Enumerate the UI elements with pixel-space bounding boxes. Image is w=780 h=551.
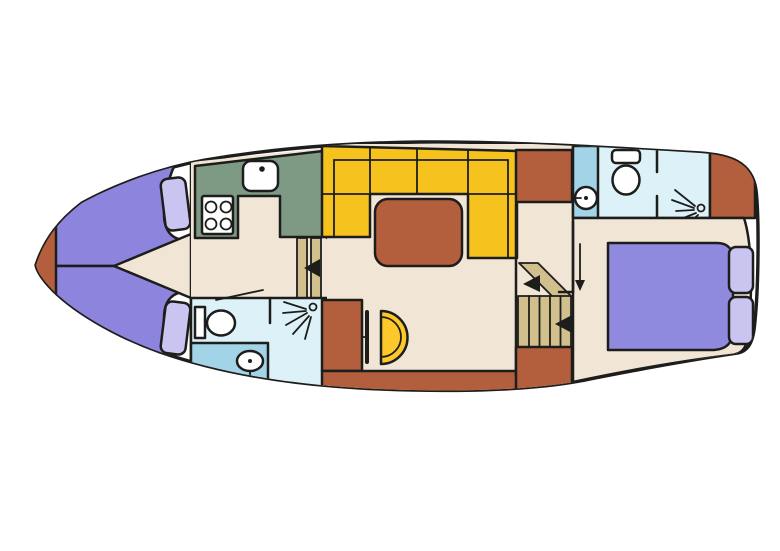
aft-bed-pillow-top — [729, 247, 753, 293]
aft-bed-pillow-bottom — [729, 297, 753, 344]
salon-cabinet-block — [322, 300, 362, 371]
aft-toilet-bowl — [613, 166, 640, 195]
forward-toilet-bowl — [207, 311, 235, 336]
v-berth-pillow-top — [160, 177, 191, 232]
galley-sink-faucet — [259, 166, 265, 172]
forward-toilet-tank — [195, 307, 205, 338]
boat-floor-plan — [0, 0, 780, 551]
aft-right-block — [710, 150, 755, 218]
salon-table — [375, 199, 462, 266]
galley-step-1 — [297, 238, 307, 300]
aft-double-bed — [608, 243, 733, 350]
stove-burner-2 — [221, 202, 232, 213]
stove-burner-4 — [221, 219, 232, 230]
galley-sink — [243, 161, 278, 191]
aft-toilet-tank — [612, 150, 640, 163]
aft-top-block — [516, 150, 572, 202]
forward-washbasin-faucet — [248, 359, 252, 363]
plan-root — [25, 142, 758, 397]
salon-bottom-bench-strip — [322, 371, 518, 397]
interior — [25, 144, 755, 397]
stove-burner-1 — [206, 202, 217, 213]
page-background — [0, 0, 780, 551]
aft-washbasin-faucet — [584, 196, 588, 200]
v-berth-pillow-bottom — [160, 301, 191, 356]
stove-burner-3 — [206, 219, 217, 230]
